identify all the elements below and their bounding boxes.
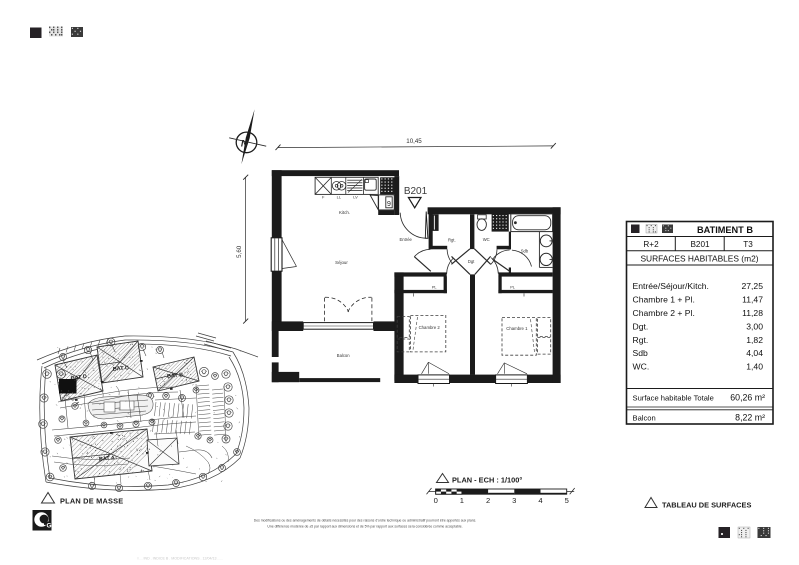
svg-text:PL: PL: [432, 285, 438, 290]
svg-text:Dgt: Dgt: [468, 259, 475, 264]
svg-text:3: 3: [512, 496, 516, 505]
svg-text:Chambre 1: Chambre 1: [506, 326, 528, 331]
svg-text:I . . IND . INDICE B . MODIFIC: I . . IND . INDICE B . MODIFICATIONS . 1…: [137, 557, 222, 561]
svg-text:Entrée/Séjour/Kitch.: Entrée/Séjour/Kitch.: [633, 281, 709, 291]
svg-text:2: 2: [486, 496, 490, 505]
svg-text:27,25: 27,25: [741, 281, 763, 291]
svg-text:Balcon: Balcon: [633, 414, 656, 423]
svg-text:0: 0: [434, 496, 438, 505]
svg-text:11,47: 11,47: [742, 295, 763, 305]
svg-text:Rgt.: Rgt.: [633, 335, 649, 345]
svg-text:1,40: 1,40: [746, 362, 763, 372]
svg-text:Sdb: Sdb: [633, 348, 649, 358]
svg-text:1: 1: [460, 496, 464, 505]
svg-text:Chambre 2: Chambre 2: [419, 325, 441, 330]
svg-text:Chambre 1 + Pl.: Chambre 1 + Pl.: [633, 295, 695, 305]
svg-text:LV: LV: [353, 194, 358, 199]
svg-text:WC.: WC.: [633, 362, 650, 372]
svg-text:5: 5: [565, 496, 569, 505]
svg-text:LL: LL: [337, 195, 342, 200]
svg-text:11,28: 11,28: [742, 308, 763, 318]
svg-text:Rgt.: Rgt.: [448, 238, 456, 243]
svg-text:PL: PL: [510, 285, 516, 290]
svg-text:BATIMENT B: BATIMENT B: [697, 225, 753, 235]
svg-text:B201: B201: [404, 186, 428, 197]
svg-text:1,82: 1,82: [746, 335, 763, 345]
svg-text:8,22 m²: 8,22 m²: [735, 413, 765, 423]
svg-text:SURFACES HABITABLES (m2): SURFACES HABITABLES (m2): [640, 254, 758, 264]
svg-text:G: G: [47, 523, 52, 530]
svg-text:4: 4: [538, 496, 542, 505]
svg-text:T3: T3: [743, 240, 753, 249]
svg-text:TABLEAU DE SURFACES: TABLEAU DE SURFACES: [662, 501, 751, 510]
svg-text:Chambre 2 + Pl.: Chambre 2 + Pl.: [633, 308, 695, 318]
svg-text:10,45: 10,45: [406, 138, 422, 145]
svg-text:Balcon: Balcon: [337, 353, 350, 358]
svg-text:5,60: 5,60: [236, 245, 243, 258]
svg-text:WC: WC: [483, 237, 490, 242]
svg-text:Sdb: Sdb: [521, 249, 529, 254]
svg-text:60,26 m²: 60,26 m²: [730, 393, 765, 403]
svg-text:PLAN - ECH : 1/100°: PLAN - ECH : 1/100°: [452, 476, 522, 485]
svg-text:4,04: 4,04: [746, 348, 763, 358]
svg-text:Séjour: Séjour: [335, 260, 348, 265]
svg-text:PLAN DE MASSE: PLAN DE MASSE: [60, 497, 123, 506]
svg-text:Kitch.: Kitch.: [339, 210, 350, 215]
svg-text:N: N: [241, 138, 249, 149]
svg-text:Une différence modérée de ±5 p: Une différence modérée de ±5 par rapport…: [267, 525, 462, 529]
svg-text:3,00: 3,00: [746, 322, 763, 332]
svg-text:9: 9: [387, 201, 391, 208]
svg-text:Surface habitable Totale: Surface habitable Totale: [633, 394, 714, 403]
svg-text:B201: B201: [690, 240, 710, 249]
svg-text:R+2: R+2: [643, 240, 659, 249]
svg-text:Dgt.: Dgt.: [633, 322, 649, 332]
svg-text:Des modifications ou des aména: Des modifications ou des aménagements de…: [254, 519, 477, 523]
svg-text:Entrée: Entrée: [400, 237, 413, 242]
